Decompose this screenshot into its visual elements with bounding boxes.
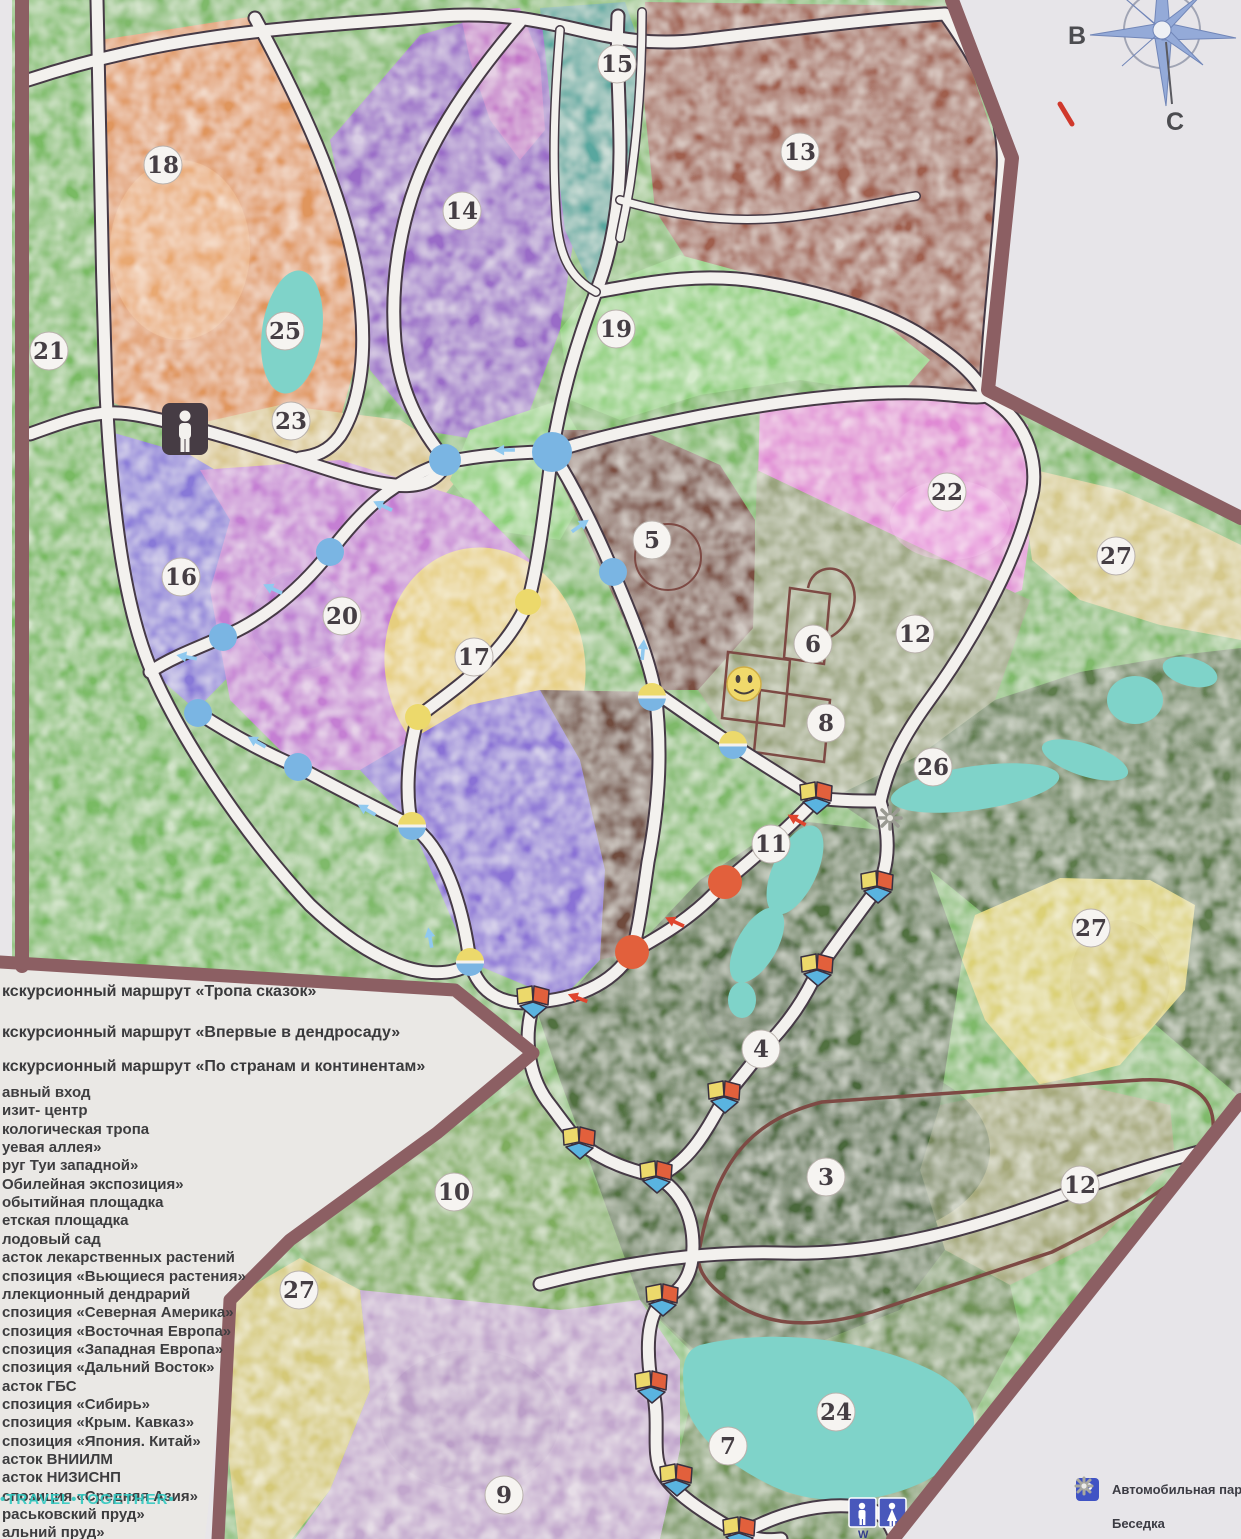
toilet-icon	[162, 403, 208, 455]
map-canvas: 1513181419252123222751612620178261127410…	[0, 0, 1241, 1539]
zone-marker: 25	[266, 312, 304, 350]
gazebo-key-icon	[1074, 1476, 1094, 1496]
zone-marker: 3	[807, 1158, 845, 1196]
zone-number: 12	[1064, 1172, 1096, 1199]
zone-marker: 4	[742, 1030, 780, 1068]
gazebo-label: Беседка	[1112, 1516, 1165, 1531]
zone-marker: 23	[272, 402, 310, 440]
zone-marker: 10	[435, 1173, 473, 1211]
route-dot-blue-yellow	[398, 812, 426, 840]
gazebo-icon	[879, 807, 901, 829]
route-dot-blue-yellow	[456, 948, 484, 976]
zone-number: 12	[899, 621, 931, 648]
route-dot-yellow	[405, 704, 431, 730]
zone-marker: 17	[455, 638, 493, 676]
zone-marker: 27	[1072, 909, 1110, 947]
zone-marker: 11	[752, 825, 790, 863]
zone-number: 20	[326, 603, 358, 630]
zone-number: 10	[438, 1179, 470, 1206]
zone-number: 13	[784, 139, 816, 166]
zone-marker: 16	[162, 558, 200, 596]
zone-number: 14	[446, 198, 478, 225]
route-dot-blue-yellow	[638, 683, 666, 711]
zone-marker: 21	[30, 332, 68, 370]
zone-number: 27	[1100, 543, 1132, 570]
route-dot-blue	[284, 753, 312, 781]
zone-number: 27	[1075, 915, 1107, 942]
zone-marker: 6	[794, 625, 832, 663]
zone-marker: 12	[896, 615, 934, 653]
zone-number: 23	[275, 408, 307, 435]
zone-number: 3	[818, 1164, 834, 1191]
zone-number: 24	[820, 1399, 852, 1426]
route-dot-blue-yellow	[719, 731, 747, 759]
zone-number: 26	[917, 754, 949, 781]
zone-number: 11	[755, 831, 787, 858]
zone-marker: 27	[280, 1271, 318, 1309]
zone-number: 19	[600, 316, 632, 343]
parking-label: Автомобильная парко	[1112, 1482, 1241, 1497]
route-dot-red	[708, 865, 742, 899]
route-dot-blue	[429, 444, 461, 476]
smiley-icon	[727, 667, 761, 701]
route-dot-red	[615, 935, 649, 969]
route-dot-blue	[532, 432, 572, 472]
route-dot-blue	[209, 623, 237, 651]
zone-marker: 26	[914, 748, 952, 786]
zone-number: 4	[753, 1036, 769, 1063]
zone-marker: 15	[598, 45, 636, 83]
zone-marker: 19	[597, 310, 635, 348]
compass-label-north: С	[1166, 108, 1184, 137]
route-dot-blue	[184, 699, 212, 727]
zone-number: 21	[33, 338, 65, 365]
zone-number: 22	[931, 479, 963, 506]
route-dot-blue	[599, 558, 627, 586]
zone-marker: 7	[709, 1427, 747, 1465]
route-dot-blue	[316, 538, 344, 566]
zone-number: 18	[147, 152, 179, 179]
compass-label-east: В	[1068, 22, 1086, 51]
route-dot-yellow	[515, 589, 541, 615]
zone-marker: 27	[1097, 537, 1135, 575]
zone-number: 15	[601, 51, 633, 78]
zone-marker: 12	[1061, 1166, 1099, 1204]
zone-marker: 18	[144, 146, 182, 184]
zone-marker: 22	[928, 473, 966, 511]
zone-number: 16	[165, 564, 197, 591]
zone-number: 25	[269, 318, 301, 345]
zone-marker: 20	[323, 597, 361, 635]
zone-marker: 13	[781, 133, 819, 171]
zone-number: 7	[720, 1433, 736, 1460]
park-map-sign: 1513181419252123222751612620178261127410…	[0, 0, 1241, 1539]
zone-number: 27	[283, 1277, 315, 1304]
zone-number: 6	[805, 631, 821, 658]
zone-number: 17	[458, 644, 490, 671]
zone-number: 9	[496, 1482, 512, 1509]
zone-number: 8	[818, 710, 834, 737]
zone-marker: 5	[633, 521, 671, 559]
zone-marker: 14	[443, 192, 481, 230]
zone-marker: 8	[807, 704, 845, 742]
zone-marker: 24	[817, 1393, 855, 1431]
zone-number: 5	[644, 527, 660, 554]
zone-marker: 9	[485, 1476, 523, 1514]
